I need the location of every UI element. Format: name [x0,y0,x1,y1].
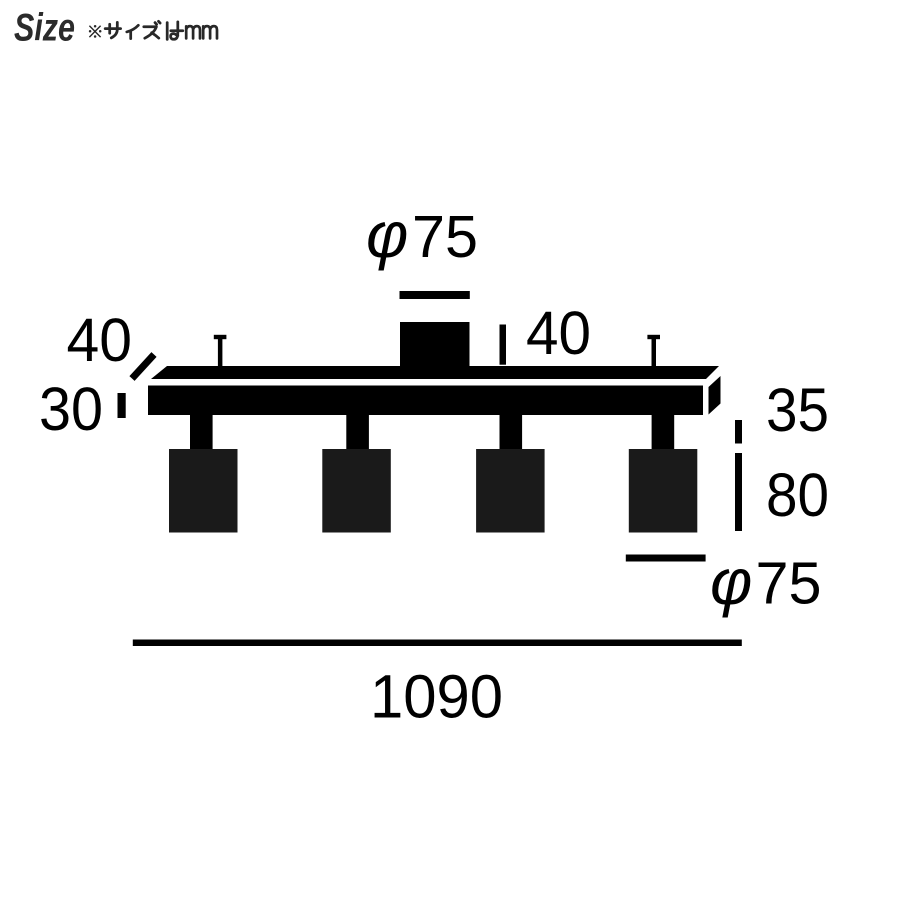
svg-text:φ: φ [710,545,752,618]
svg-text:40: 40 [526,299,591,368]
svg-text:40: 40 [67,306,133,375]
svg-text:75: 75 [756,551,822,617]
svg-text:φ: φ [366,198,408,271]
svg-text:Size: Size [14,7,75,50]
svg-text:30: 30 [39,375,103,444]
svg-text:75: 75 [412,204,478,270]
svg-text:1090: 1090 [370,663,503,732]
svg-text:80: 80 [766,461,829,530]
svg-text:35: 35 [766,376,829,445]
